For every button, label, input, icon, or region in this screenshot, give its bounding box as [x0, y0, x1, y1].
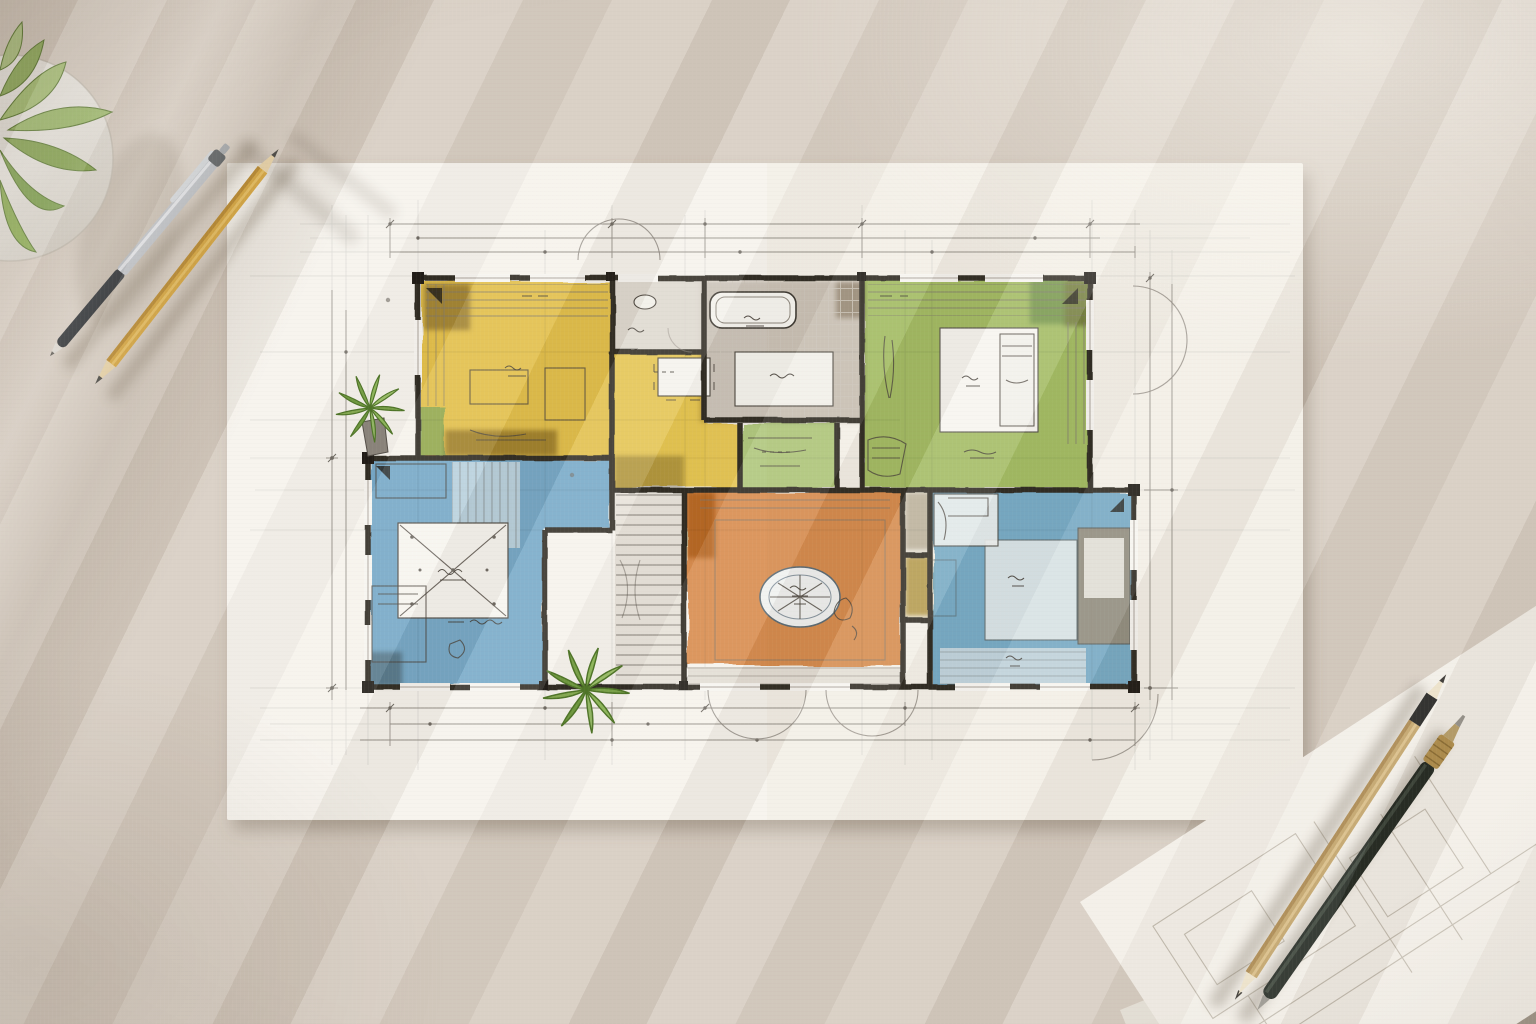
stair-treads: [616, 494, 683, 684]
scene-canvas: [0, 0, 1536, 1024]
bath-rug: [735, 352, 833, 406]
rug-blue-right: [985, 540, 1077, 640]
vestibule-floor: [614, 278, 704, 351]
bed-green-room: [1000, 334, 1034, 426]
pencil-wood-tip: [91, 360, 116, 387]
vestibule-sink: [634, 295, 656, 309]
desk-scene: [0, 0, 1536, 1024]
closet-left-green: [420, 408, 446, 457]
room-closet-green: [742, 423, 837, 488]
room-dining-ext: [705, 422, 740, 488]
